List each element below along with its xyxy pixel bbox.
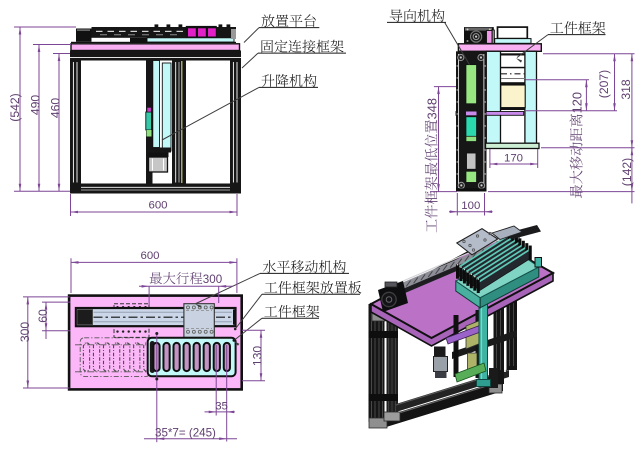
svg-text:318: 318 [619,79,633,100]
svg-text:130: 130 [250,346,264,367]
svg-text:490: 490 [28,95,42,116]
svg-text:100: 100 [461,200,480,212]
svg-text:35*7= (245): 35*7= (245) [155,426,216,439]
svg-text:600: 600 [149,200,168,212]
svg-text:35: 35 [215,401,228,413]
svg-text:600: 600 [141,250,160,262]
svg-text:348: 348 [425,98,440,119]
svg-text:60: 60 [36,309,50,323]
svg-text:300: 300 [203,273,222,286]
svg-text:(207): (207) [597,70,611,98]
svg-text:(142): (142) [620,158,634,186]
svg-text:460: 460 [48,98,62,119]
svg-text:(542): (542) [8,93,22,121]
svg-text:170: 170 [504,153,523,165]
svg-text:120: 120 [570,92,585,113]
svg-text:300: 300 [18,322,32,343]
